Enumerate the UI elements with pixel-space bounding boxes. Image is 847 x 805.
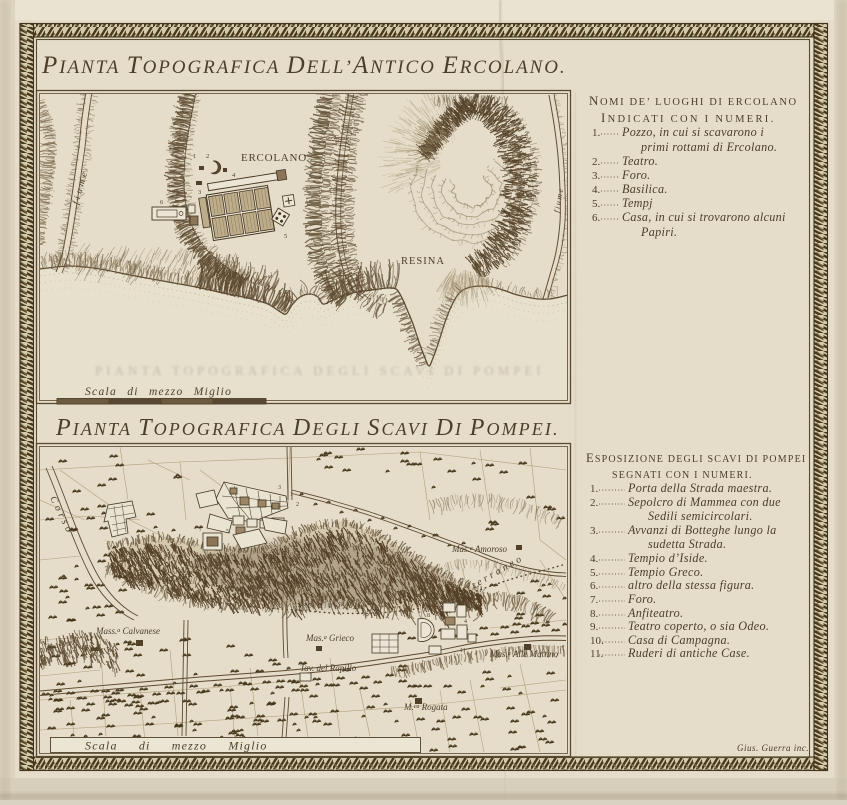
svg-text:Gius. Guerra inc.: Gius. Guerra inc. [737,743,809,753]
